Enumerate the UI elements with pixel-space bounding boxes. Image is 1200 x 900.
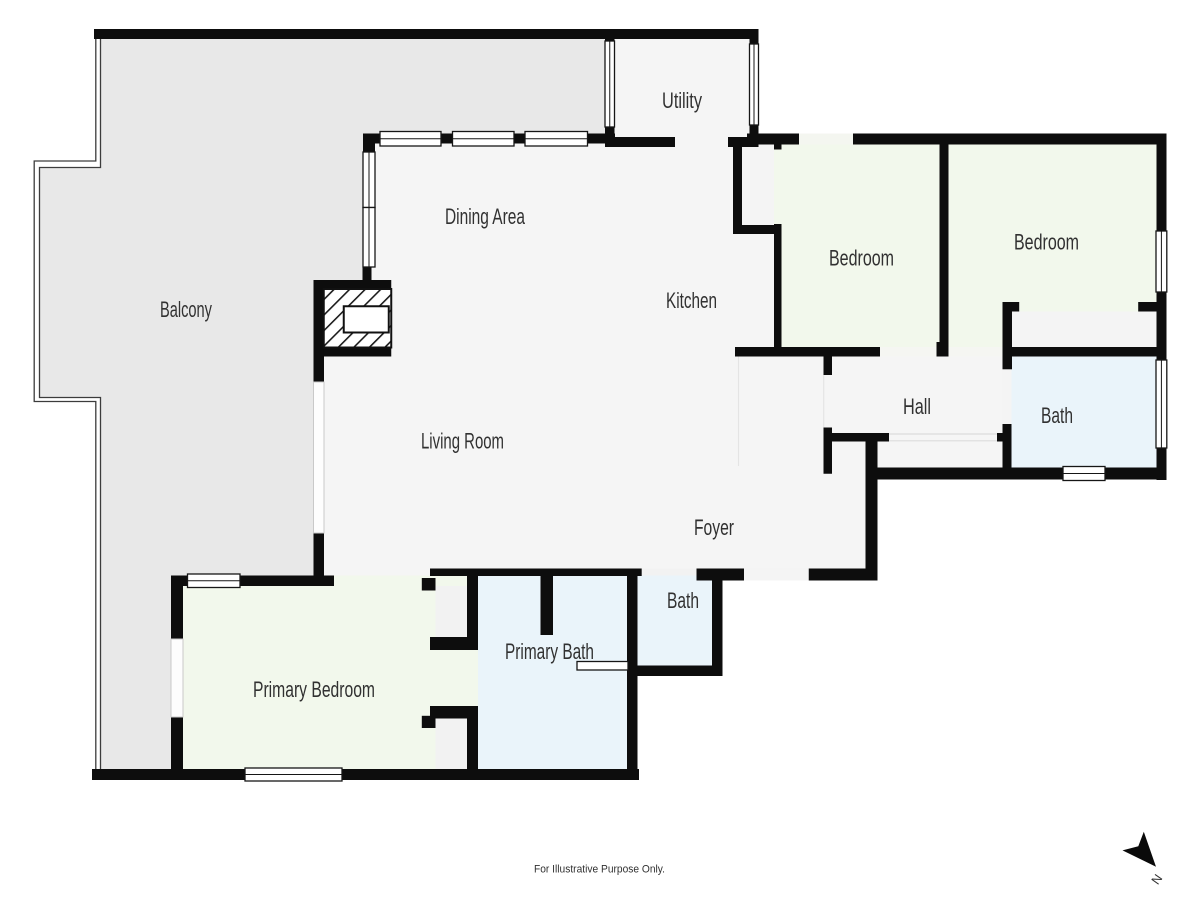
svg-text:Utility: Utility: [662, 88, 702, 113]
svg-text:Primary Bedroom: Primary Bedroom: [253, 677, 375, 702]
svg-text:Bedroom: Bedroom: [829, 246, 894, 271]
svg-text:For Illustrative Purpose Only.: For Illustrative Purpose Only.: [534, 864, 665, 876]
svg-text:Bedroom: Bedroom: [1014, 230, 1079, 255]
svg-text:Dining Area: Dining Area: [445, 204, 526, 229]
svg-text:Living Room: Living Room: [421, 429, 504, 454]
svg-text:Balcony: Balcony: [160, 297, 212, 322]
svg-text:Primary Bath: Primary Bath: [505, 639, 594, 664]
svg-text:Kitchen: Kitchen: [666, 288, 717, 313]
svg-text:Bath: Bath: [667, 588, 699, 613]
svg-text:Foyer: Foyer: [694, 515, 734, 540]
svg-text:Hall: Hall: [903, 394, 931, 419]
svg-text:Bath: Bath: [1041, 403, 1073, 428]
